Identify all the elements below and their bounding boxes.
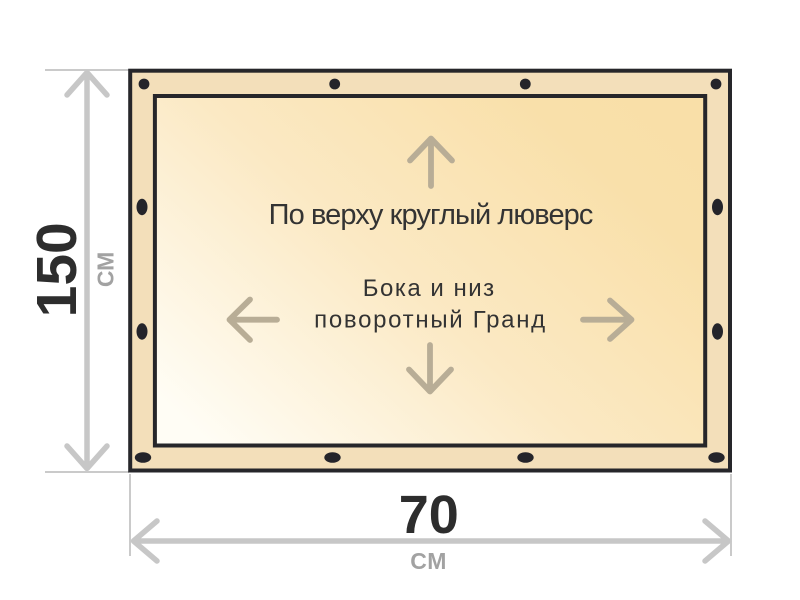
svg-text:По верху круглый люверс: По верху круглый люверс [269, 199, 593, 231]
svg-text:70: 70 [399, 485, 459, 545]
svg-text:Бока и низ: Бока и низ [363, 275, 496, 302]
svg-text:поворотный Гранд: поворотный Гранд [314, 307, 547, 334]
svg-text:СМ: СМ [93, 252, 119, 287]
svg-text:150: 150 [25, 222, 89, 317]
svg-text:СМ: СМ [410, 548, 447, 574]
